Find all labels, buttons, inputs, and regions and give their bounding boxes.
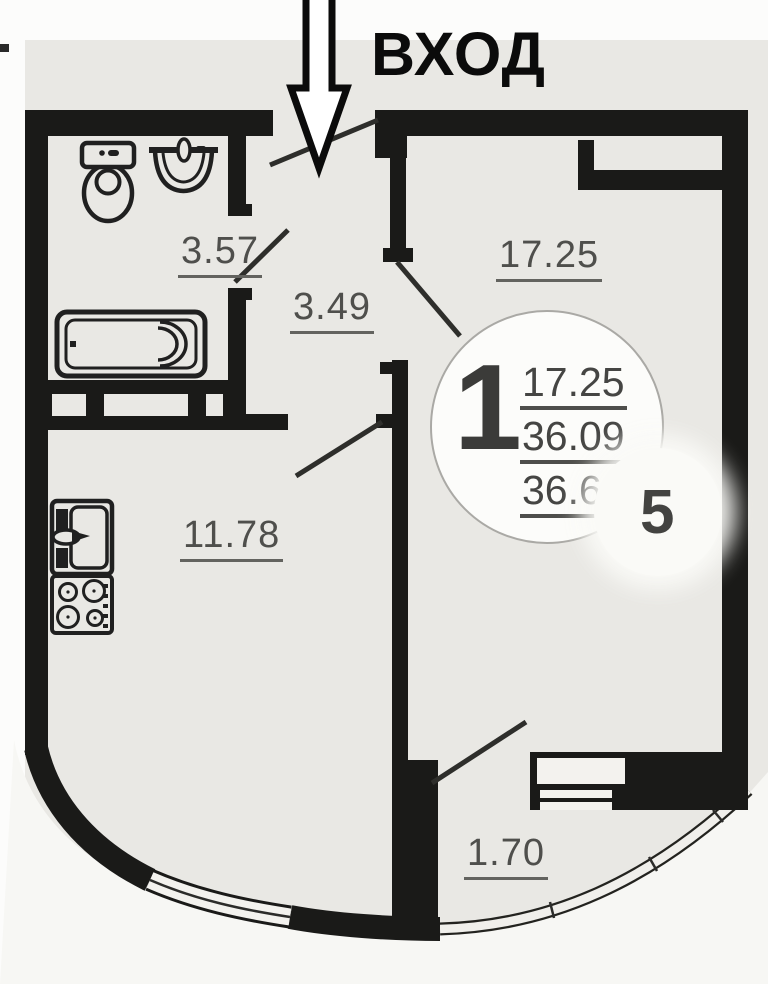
scan-artifact [0, 44, 9, 52]
unit-number-label: 5 [640, 482, 674, 544]
balcony-window [537, 758, 625, 810]
stove-icon [52, 576, 112, 633]
entrance-label: ВХОД [371, 24, 546, 85]
usable-area-value: 36.09 [520, 416, 627, 464]
balcony-door-swing [432, 722, 526, 783]
bathtub-icon [57, 312, 205, 376]
living-area-value: 17.25 [520, 362, 627, 410]
balcony-area-label: 1.70 [464, 834, 548, 880]
bathroom-area-label: 3.57 [178, 232, 262, 278]
room-door-swing [397, 262, 460, 336]
toilet-icon [82, 143, 134, 221]
living-room-area-label: 17.25 [496, 236, 602, 282]
room-count: 1 [454, 346, 522, 468]
kitchen-sink-icon [52, 501, 112, 574]
washbasin-icon [149, 139, 218, 191]
kitchen-door-swing [296, 422, 382, 476]
hallway-area-label: 3.49 [290, 288, 374, 334]
kitchen-area-label: 11.78 [180, 516, 283, 562]
floor-plan-page: ВХОД 3.57 3.49 17.25 11.78 1.70 1 17.25 … [0, 0, 768, 984]
entrance-arrow-icon [291, 0, 347, 168]
